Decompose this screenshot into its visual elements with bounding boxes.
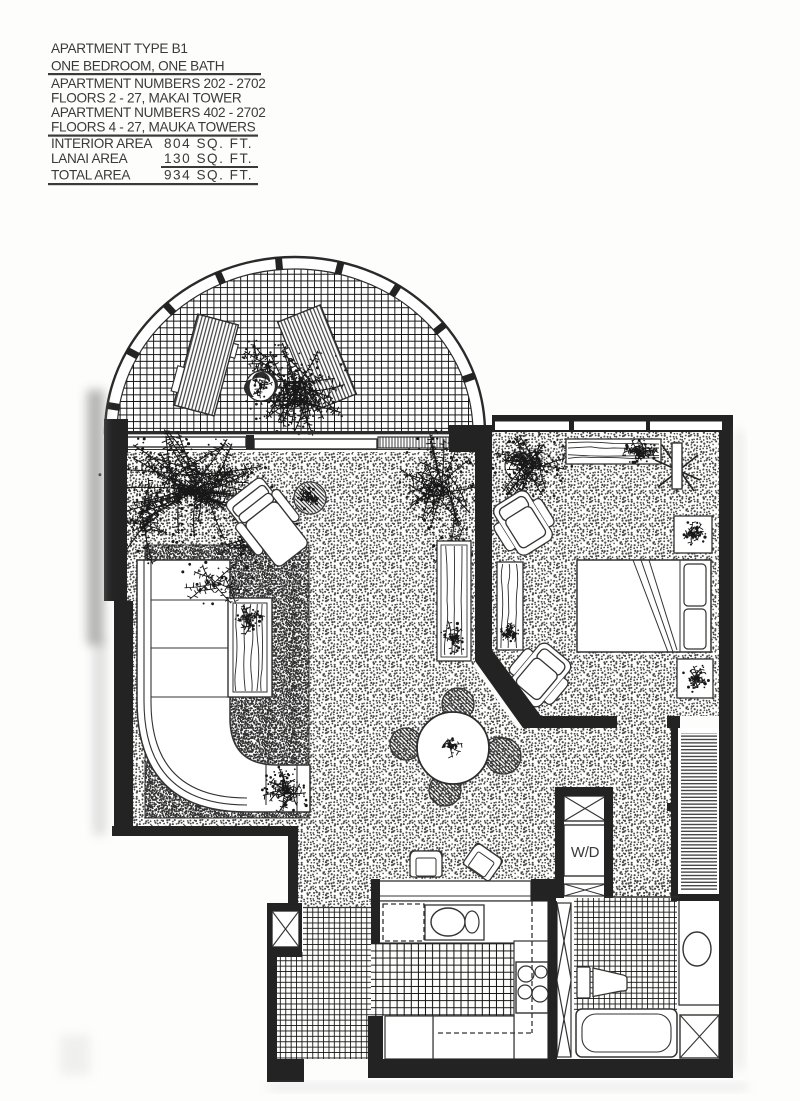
svg-text:804 SQ. FT.: 804 SQ. FT. <box>164 136 253 151</box>
svg-text:130 SQ. FT.: 130 SQ. FT. <box>164 151 253 166</box>
svg-text:FLOORS 4 - 27, MAUKA TOWERS: FLOORS 4 - 27, MAUKA TOWERS <box>51 120 256 135</box>
svg-text:LANAI AREA: LANAI AREA <box>51 151 129 166</box>
svg-text:FLOORS 2 - 27, MAKAI TOWER: FLOORS 2 - 27, MAKAI TOWER <box>51 91 242 106</box>
svg-text:APARTMENT NUMBERS 402 - 2702: APARTMENT NUMBERS 402 - 2702 <box>51 105 265 120</box>
svg-text:ONE BEDROOM, ONE BATH: ONE BEDROOM, ONE BATH <box>51 59 224 74</box>
svg-text:APARTMENT TYPE B1: APARTMENT TYPE B1 <box>51 41 188 56</box>
svg-text:934 SQ. FT.: 934 SQ. FT. <box>164 168 253 183</box>
svg-text:APARTMENT NUMBERS 202 - 2702: APARTMENT NUMBERS 202 - 2702 <box>51 76 265 91</box>
svg-text:W/D: W/D <box>571 844 600 861</box>
svg-text:TOTAL AREA: TOTAL AREA <box>51 168 131 183</box>
svg-text:INTERIOR AREA: INTERIOR AREA <box>51 136 153 151</box>
